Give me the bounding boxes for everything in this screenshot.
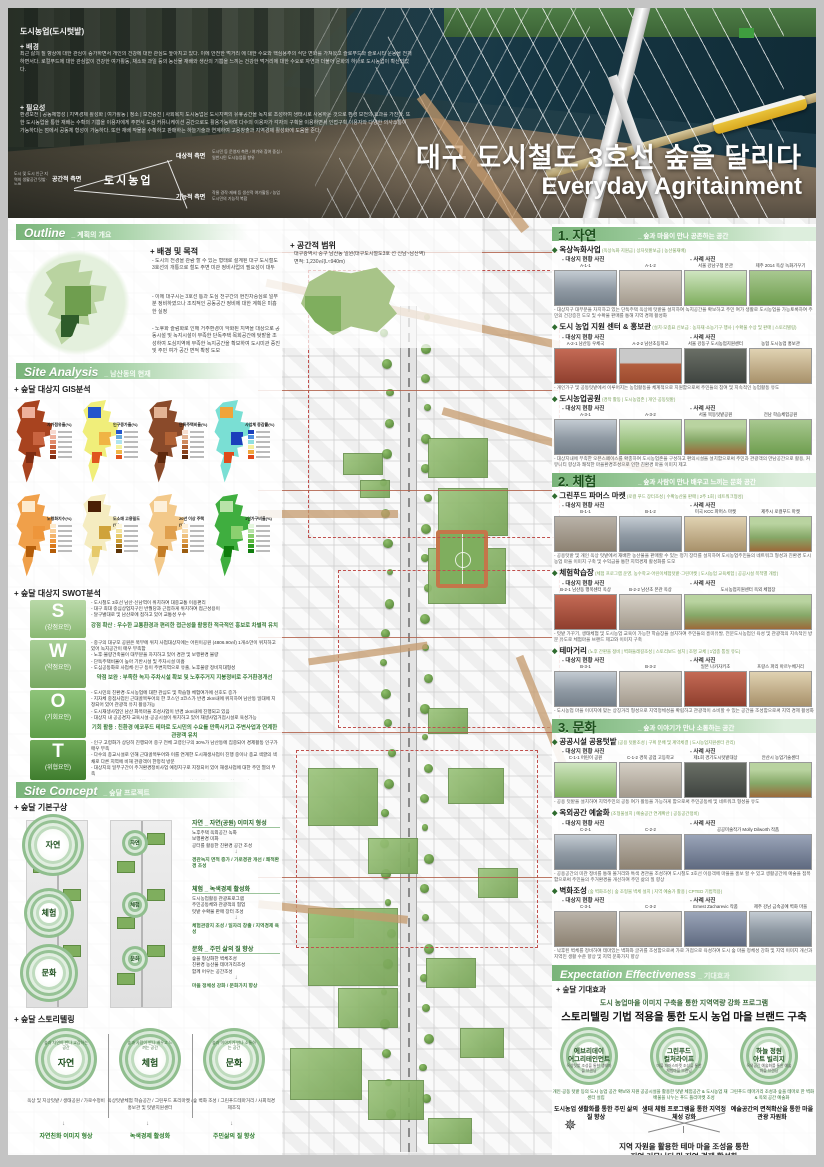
strip-green	[117, 917, 135, 929]
gis-map-label: 사업체 증감률(%)	[245, 422, 275, 428]
program-item: ◆ 체험학습장 (체험 프로그램 운영, 농수학교·어린이체험텃밭·그린마켓 |…	[552, 568, 816, 642]
photo-caption: C-3-2	[619, 904, 682, 911]
gis-legend	[50, 430, 72, 460]
photo-image	[684, 516, 747, 552]
gis-map: 20년 이상 주택(%)	[144, 490, 210, 584]
swot-letter: W	[30, 642, 86, 661]
photo-image	[684, 834, 812, 870]
photo-image	[554, 671, 617, 707]
program-item: ◆ 그린푸드 파머스 마켓 (로컬 푸드 장터조성 | 수확농산물 판매 | 2…	[552, 491, 816, 565]
legend-row	[182, 430, 204, 434]
photo: 제주시 로컬푸드 마켓	[749, 509, 812, 552]
right-column: 1. 자연_ 숲과 마을이 만나 공존하는 공간◆ 옥상녹화사업 (옥상녹화 지…	[552, 224, 816, 1155]
section-number-name: 2. 체험	[558, 471, 596, 490]
gis-title: + 숲달 대상지 GIS분석	[14, 384, 91, 395]
gis-legend	[50, 524, 72, 554]
photo: 전남 학습체험공원	[749, 412, 812, 455]
expectation-column-result: 예술공간의 면적확산을 통한 마을 관광 자원화	[728, 1107, 816, 1122]
diagram-func-note: 작물 경작·재배 등 생산적 여가활동 / 농업 도시민의 기능적 복합	[212, 190, 282, 204]
gis-legend	[248, 524, 270, 554]
swot-type: (위협요인)	[30, 762, 86, 771]
program-item-tags: (옥상녹화 지원금 | 상자텃밭보급 | 농산물재배)	[601, 248, 686, 253]
legend-chip	[116, 529, 122, 533]
swot-bullet: - 도심공동화로 사업체·인구 등이 주변지역으로 유출, 노후불량 정비지대형…	[91, 665, 278, 671]
legend-row	[50, 440, 72, 444]
concept-spiral-label: 자연	[125, 839, 145, 846]
legend-chip	[248, 435, 254, 439]
swot-bullet: - 달구벌대로 및 남산로에 접하고 있어 교통성 우수	[91, 612, 278, 618]
legend-text	[190, 446, 204, 448]
photo: A-1-1	[554, 263, 617, 306]
photo: C-2-1	[554, 827, 617, 870]
strip-green	[147, 833, 165, 845]
legend-row	[50, 539, 72, 543]
gis-map-patch	[99, 526, 111, 539]
expectation-circle-1: 에브리데이어그리테인먼트옥상텃밭 조성을 통한 생태마을 브랜딩	[560, 1027, 618, 1085]
street-tree	[422, 734, 428, 740]
swot-bullet: - 다수의 종교시설로 인해 근대골목투어와 이를 연계한 도시재생사업이 진행…	[91, 752, 278, 764]
expectation-header-sub: _ 기대효과	[696, 973, 730, 980]
photo: B-2-1 남산동 행복센터 옥상	[554, 587, 617, 630]
photo: C-2-2	[619, 827, 682, 870]
legend-row	[182, 450, 204, 454]
photo-image	[554, 419, 617, 455]
program-item-tags: (설치·모종묘 신보급 : 농자재·소농기구·행사 | 수확물 수상 및 판매 …	[651, 325, 796, 330]
goal-title: + 배경 및 목적	[150, 246, 198, 257]
gis-map-label: 단독주택비율(%)	[179, 422, 209, 428]
legend-row	[182, 549, 204, 553]
photo: A-2-1 남산동 우체국	[554, 341, 617, 384]
expectation-circle-name2: 어그리테인먼트	[563, 1056, 615, 1064]
green-parcel	[290, 1048, 362, 1100]
program-item-name: 도시 농업 지원 센터 & 홍보관	[559, 322, 651, 331]
photo: C-3-2	[619, 904, 682, 947]
legend-chip	[182, 445, 188, 449]
photo-image	[619, 834, 682, 870]
legend-row	[116, 450, 138, 454]
swot-row-s: S(강점요인)- 도시철도 3호선 남산·신남역이 위치하여 대중교통 이용편리…	[30, 600, 278, 638]
legend-row	[50, 524, 72, 528]
analysis-header-title: Site Analysis	[16, 364, 98, 380]
photo-caption: C-3-1	[554, 904, 617, 911]
goal-bullet-1: - 도시의 전경을 관람 할 수 있는 형태로 설계된 대구 도시철도 3호선의…	[152, 258, 280, 290]
daegu-map-site	[61, 315, 78, 338]
photo-image	[554, 594, 617, 630]
outline-header-sub: _ 계획의 개요	[71, 232, 111, 239]
legend-row	[182, 544, 204, 548]
story-result: 주민삶의 질 향상	[191, 1131, 277, 1140]
green-parcel	[338, 988, 398, 1028]
expectation-column-3: 그린푸드 테마거리 조성과 숲을 테마로 한 벽화 & 옥외 공간 예술화예술공…	[728, 1089, 816, 1122]
concept-spiral-label: 체험	[125, 901, 145, 908]
gis-map-patch	[231, 526, 243, 539]
green-parcel	[428, 1118, 472, 1144]
hero-photo: 도시농업(도시텃밭) + 배경 최근 삶의 질 향상에 대한 관심이 증가하면서…	[8, 8, 816, 218]
photo-image	[749, 516, 812, 552]
photo-labels-row: - 대상지 현황 사진- 사례 사진	[552, 656, 816, 664]
section-subtitle: _ 숲과 마을이 만나 공존하는 공간	[638, 230, 728, 240]
legend-chip	[50, 450, 56, 454]
street-tree	[422, 1004, 430, 1012]
photo-labels-row: - 대상지 현황 사진- 사례 사진	[552, 579, 816, 587]
program-item-tags: (숲 벽화조성 | 숲 조형물 벽체 설치 | 지역 예술가 활용 | CPTE…	[587, 889, 722, 894]
photo-caption: 미국 KCC 파머스 마켓	[684, 509, 747, 516]
legend-row	[50, 529, 72, 533]
legend-text	[124, 540, 138, 542]
photo: 서울 강남구청 본관	[684, 263, 747, 306]
legend-chip	[116, 524, 122, 528]
expectation-circle-2: 그린푸드컬처라이프마을 파머스마켓 조성을 통한 체험마을 브랜딩	[650, 1027, 708, 1085]
legend-chip	[182, 534, 188, 538]
legend-text	[124, 441, 138, 443]
street-tree	[382, 1049, 391, 1058]
photo: 서울 목동텃밭공원	[684, 412, 747, 455]
diagram-space-note: 도시 및 도시 인근 지역의 생활공간 텃밭·농원	[14, 171, 50, 185]
goal-bullet-2: - 이에 대구시는 3호선 통과 도심 천구간의 현진차중심로 일부분 정비하였…	[152, 294, 280, 324]
swot-body: - 도시민의 친환경·도시농업에 대한 관심도 및 학습형 체험여가에 선호도 …	[86, 690, 278, 738]
photo-image	[684, 911, 747, 947]
expectation-column-note: 개인·공동 텃밭 등의 도시 농업 공간 확보와 지원센터 설립	[552, 1089, 640, 1106]
gis-legend	[182, 430, 204, 460]
photo-image	[684, 419, 747, 455]
photo-image	[619, 516, 682, 552]
photo-caption: B-1-2	[619, 509, 682, 516]
photo: 공공미술작가 Molly Dilworth 작품	[684, 827, 812, 870]
down-arrow-icon: ↓	[192, 915, 280, 922]
poster-page: 도시농업(도시텃밭) + 배경 최근 삶의 질 향상에 대한 관심이 증가하면서…	[0, 0, 824, 1167]
gis-map-patch	[224, 452, 234, 463]
photo-caption: C-2-2	[619, 827, 682, 834]
photo-caption: C-1-1 어린이 공원	[554, 755, 617, 762]
expectation-circle-note: 마을 파머스마켓 조성을 통한 체험마을 브랜딩	[656, 1064, 702, 1073]
down-arrow-icon: ↓	[192, 975, 280, 982]
legend-text	[190, 431, 204, 433]
expectation-circle-name1: 그린푸드	[653, 1048, 705, 1056]
case-photos-label: - 사례 사진	[690, 333, 716, 341]
photo-image	[749, 348, 812, 384]
legend-row	[248, 435, 270, 439]
swot-letter: O	[30, 692, 86, 711]
story-tagline: 숲과 자연이 만나 교감하는 공간	[42, 1040, 89, 1050]
story-items: 옥상 및 지상텃밭 / 생태공원 / 가로수정비	[23, 1098, 109, 1120]
legend-row	[248, 534, 270, 538]
legend-row	[182, 529, 204, 533]
concept-header-title: Site Concept	[16, 783, 97, 799]
legend-text	[58, 525, 72, 527]
legend-chip	[116, 539, 122, 543]
legend-row	[116, 549, 138, 553]
section-header-체험: 2. 체험_ 숲과 사람이 만나 배우고 느끼는 문화 공간	[552, 471, 816, 488]
diagram-space-label: 공간적 측면	[52, 174, 81, 183]
gis-legend	[182, 524, 204, 554]
photo-image	[554, 348, 617, 384]
legend-chip	[116, 440, 122, 444]
legend-row	[248, 544, 270, 548]
legend-chip	[182, 430, 188, 434]
program-item: ◆ 도시 농업 지원 센터 & 홍보관 (설치·모종묘 신보급 : 농자재·소농…	[552, 322, 816, 390]
gis-map: 1인가구비율(%)	[210, 490, 276, 584]
concept-block-result: 경관녹지 면적 증가 / 가로경관 개선 / 쾌적환경 조성	[192, 858, 280, 871]
diagram-center-label: 도시농업	[104, 172, 152, 188]
swot-letter: S	[30, 602, 86, 621]
photo-caption: 안산시 농업기술센터	[749, 755, 812, 762]
legend-chip	[248, 544, 254, 548]
story-circle-2: 숲과 사람이 만나 배우고 느끼는 공간체험	[119, 1028, 181, 1090]
legend-chip	[248, 430, 254, 434]
daegu-map-blob	[38, 260, 116, 348]
legend-row	[116, 529, 138, 533]
program-item: ◆ 옥외공간 예술화 (조형물설치 | 예술공간 연계확산 | 공동공간정비)-…	[552, 808, 816, 882]
photo-caption: B-2-1 남산동 행복센터 옥상	[554, 587, 617, 594]
gis-map-patch	[224, 546, 234, 557]
photo: C-3-1	[554, 904, 617, 947]
legend-text	[124, 530, 138, 532]
expectation-circle-3: 하늘 정원아트 빌리지옥외공간 예술화를 통한 예술마을 브랜딩	[740, 1027, 798, 1085]
gis-map: 도소매 고용밀도(%)	[78, 490, 144, 584]
swot-letter-box: T(위협요인)	[30, 740, 86, 780]
expectation-circle-note: 옥상텃밭 조성을 통한 생태마을 브랜딩	[566, 1064, 612, 1073]
photo-image	[554, 834, 617, 870]
gis-map-label: 1인가구비율(%)	[245, 516, 275, 522]
photo: 도시농업지원센터 옥외 체험장	[684, 587, 812, 630]
photo: 서울 강동구 도시농업지원센터	[684, 341, 747, 384]
program-item-description: - 개인가구 및 공동텃밭에서 이루어지는 농업활동을 체계적으로 지원함으로써…	[552, 385, 816, 391]
photo: A-3-2	[619, 412, 682, 455]
legend-text	[124, 550, 138, 552]
photo-labels-row: - 대상지 현황 사진- 사례 사진	[552, 255, 816, 263]
legend-chip	[116, 549, 122, 553]
case-photos-label: - 사례 사진	[690, 896, 716, 904]
photo-image	[554, 911, 617, 947]
daegu-district-map	[10, 246, 144, 364]
swot-summary: 고령인구 및 비경제활동인구의 일자리를 창출 할 수 있는 사회적경제조직 육…	[91, 779, 278, 780]
legend-chip	[248, 524, 254, 528]
poster-title-en: Everyday Agritainment	[416, 173, 802, 201]
expectation-circle-name: 에브리데이어그리테인먼트	[563, 1048, 615, 1064]
legend-row	[50, 435, 72, 439]
legend-chip	[248, 549, 254, 553]
photo: Ernest Zacharevic 작품	[684, 904, 747, 947]
story-tagline: 숲과 이야기가 만나 소통하는 공간	[210, 1040, 257, 1050]
gis-map-patch	[220, 501, 233, 513]
expectation-circle-name2: 아트 빌리지	[743, 1056, 795, 1064]
current-photos-label: - 대상지 현황 사진	[562, 896, 605, 904]
concept-spiral-label: 자연	[25, 839, 81, 850]
photo-image	[684, 594, 812, 630]
legend-row	[50, 455, 72, 459]
down-arrow-icon: ↓	[192, 849, 280, 856]
current-photos-label: - 대상지 현황 사진	[562, 501, 605, 509]
photo-image	[554, 516, 617, 552]
legend-chip	[182, 529, 188, 533]
photo: A-2-2 남산초등학교	[619, 341, 682, 384]
concept-block: 체험 _ 녹색경제 활성화도시농업활용 관광프로그램주민공동체와 관광객의 협업…	[192, 884, 280, 937]
case-photos-label: - 사례 사진	[690, 501, 716, 509]
swot-title: + 숲달 대상지 SWOT분석	[14, 588, 101, 599]
street-tree	[419, 1064, 426, 1071]
program-item-title: ◆ 도시농업공원 (경작 활동 | 도시농업존 | 개인·공동텃밭)	[552, 394, 816, 404]
legend-row	[248, 455, 270, 459]
photo-row: C-3-1C-3-2Ernest Zacharevic 작품제주 강남 금속공예…	[552, 904, 816, 947]
legend-text	[58, 540, 72, 542]
program-item-name: 그린푸드 파머스 마켓	[559, 491, 625, 500]
swot-letter: T	[30, 742, 86, 761]
photo-labels-row: - 대상지 현황 사진- 사례 사진	[552, 747, 816, 755]
legend-text	[58, 535, 72, 537]
legend-row	[248, 450, 270, 454]
gis-map-patch	[33, 526, 45, 539]
green-mark	[739, 28, 754, 38]
gis-map-patch	[154, 501, 167, 513]
legend-chip	[50, 539, 56, 543]
photo-caption: C-2-1	[554, 827, 617, 834]
analysis-header-sub: _ 남산동의 현재	[104, 371, 150, 378]
legend-chip	[116, 445, 122, 449]
leader-line	[258, 637, 558, 638]
photo-caption: 제주 2014 옥상 녹화가꾸기	[749, 263, 812, 270]
legend-text	[190, 550, 204, 552]
gis-map: 인구증가율(%)	[78, 396, 144, 490]
legend-chip	[248, 455, 254, 459]
gis-map-patch	[33, 432, 45, 445]
story-name: 문화	[206, 1057, 262, 1070]
program-item: ◆ 테마거리 (노후 간판을 정비 | 벽화둘레길조성 | 스토리보드 설치 |…	[552, 646, 816, 714]
legend-text	[190, 456, 204, 458]
gis-legend	[248, 430, 270, 460]
program-item-name: 도시농업공원	[559, 394, 600, 403]
photo-image	[554, 762, 617, 798]
expectation-circle-name1: 에브리데이	[563, 1048, 615, 1056]
photo: 제주 2014 옥상 녹화가꾸기	[749, 263, 812, 306]
expectation-circle-note: 옥외공간 예술화를 통한 예술마을 브랜딩	[746, 1064, 792, 1073]
program-item-description: - 공용 텃밭을 설치하여 지역주민의 공동 여가 활동을 가능하게 함으로써 …	[552, 799, 816, 805]
photo-caption: A-1-1	[554, 263, 617, 270]
legend-text	[58, 456, 72, 458]
legend-chip	[182, 524, 188, 528]
photo-caption: 전남 학습체험공원	[749, 412, 812, 419]
gis-map-patch	[26, 452, 36, 463]
expectation-circle-name: 그린푸드컬처라이프	[653, 1048, 705, 1064]
story-tagline: 숲과 사람이 만나 배우고 느끼는 공간	[126, 1040, 173, 1050]
program-item: ◆ 공공시설 공용텃밭 (공용 텃밭조성 | 구획 분배 및 계약체결 | 도시…	[552, 737, 816, 805]
story-name: 체험	[122, 1057, 178, 1070]
legend-text	[58, 436, 72, 438]
legend-chip	[248, 534, 254, 538]
legend-chip	[116, 435, 122, 439]
legend-text	[190, 451, 204, 453]
expectation-line1: 도시 농업마을 이미지 구축을 통한 지역역량 강화 프로그램	[552, 998, 816, 1008]
case-photos-label: - 사례 사진	[690, 404, 716, 412]
outline-section-header: Outline_ 계획의 개요	[16, 224, 248, 240]
legend-chip	[50, 455, 56, 459]
current-photos-label: - 대상지 현황 사진	[562, 404, 605, 412]
legend-text	[124, 545, 138, 547]
photo-caption: A-1-2	[619, 263, 682, 270]
photo: C-1-1 어린이 공원	[554, 755, 617, 798]
section-number-name: 3. 문화	[558, 717, 596, 736]
expectation-title: + 숲달 기대효과	[552, 984, 816, 995]
analysis-section-header: Site Analysis_ 남산동의 현재	[16, 363, 248, 379]
concept-spiral-문화: 문화	[20, 944, 78, 1002]
legend-chip	[248, 440, 254, 444]
section-header-문화: 3. 문화_ 숲과 이야기가 만나 소통하는 공간	[552, 717, 816, 734]
story-circle-1: 숲과 자연이 만나 교감하는 공간자연	[35, 1028, 97, 1090]
expectation-circle-name: 하늘 정원아트 빌리지	[743, 1048, 795, 1064]
photo-image	[619, 762, 682, 798]
legend-chip	[50, 435, 56, 439]
photo-labels-row: - 대상지 현황 사진- 사례 사진	[552, 819, 816, 827]
legend-text	[124, 456, 138, 458]
legend-row	[182, 445, 204, 449]
photo-labels-row: - 대상지 현황 사진- 사례 사진	[552, 896, 816, 904]
legend-row	[116, 455, 138, 459]
down-arrow-icon: ↓	[230, 1121, 233, 1128]
legend-text	[58, 545, 72, 547]
concept-basic-title: + 숲달 기본구상	[14, 802, 67, 813]
gis-map: 자가점유율(%)	[12, 396, 78, 490]
story-circle-3: 숲과 이야기가 만나 소통하는 공간문화	[203, 1028, 265, 1090]
photo-row: B-2-1 남산동 행복센터 옥상B-2-2 남산초 본관 옥상도시농업지원센터…	[552, 587, 816, 630]
legend-text	[256, 441, 270, 443]
photo-caption: C-1-2 경북 공업 고등학교	[619, 755, 682, 762]
street-tree	[383, 539, 392, 548]
diagram-target-note: 도시민 등 운영자 측면 / 여가와 참여 중심 / 일반시민 도시농업을 향유	[212, 149, 282, 163]
outline-header-title: Outline	[16, 225, 65, 241]
concept-block-title: 문화 _ 주민 삶의 질 향상	[192, 944, 280, 954]
green-parcel	[368, 1080, 424, 1120]
swot-letter-box: W(약점요인)	[30, 640, 86, 688]
legend-row	[116, 435, 138, 439]
photo-caption: 일본 나카자키초	[684, 664, 747, 671]
legend-text	[124, 451, 138, 453]
program-item-name: 옥상녹화사업	[559, 245, 600, 254]
program-item-tags: (로컬 푸드 장터조성 | 수확농산물 판매 | 2주 1회 | 네트워크형성)	[626, 494, 744, 499]
swot-body: - 중구의 대규모 공원은 북부에 위치 사업대상지에는 어린이공원 (4806…	[86, 640, 278, 688]
gis-map-patch	[165, 526, 177, 539]
concept-block: 문화 _ 주민 삶의 질 향상숲을 형상화한 벽체조성친환경 농산물 테마거리조…	[192, 944, 280, 990]
diagram-target-label: 대상적 측면	[176, 151, 205, 160]
street-tree	[424, 1034, 434, 1044]
program-item-name: 테마거리	[559, 646, 587, 655]
concept-spiral-체험: 체험	[24, 888, 74, 938]
photo-row: B-3-1B-3-2일본 나카자키초프랑스 파리 아르누베거리	[552, 664, 816, 707]
program-item-description: - 도시농업 마을 이미지에 맞는 상징거리 형성으로 지역정체성을 확립하고 …	[552, 708, 816, 714]
photo-image	[619, 419, 682, 455]
gis-map-patch	[99, 432, 111, 445]
legend-row	[116, 534, 138, 538]
photo-image	[749, 762, 812, 798]
legend-row	[50, 544, 72, 548]
concept-block-result: 마을 정체성 강화 / 문화가치 향상	[192, 984, 280, 990]
concept-spiral-label: 문화	[125, 955, 145, 962]
down-arrow-icon: ↓	[146, 1121, 149, 1128]
leader-line	[258, 732, 558, 733]
gis-map-label: 노령화지수(%)	[47, 516, 77, 522]
green-parcel	[426, 958, 476, 988]
gis-map-patch	[92, 546, 102, 557]
photo: A-3-1	[554, 412, 617, 455]
legend-text	[124, 431, 138, 433]
program-item-tags: (경작 활동 | 도시농업존 | 개인·공동텃밭)	[601, 397, 676, 402]
legend-row	[248, 539, 270, 543]
program-item-description: - 대상지내에 부족한 오픈스페이스를 확충하여 도시농업존을 구성하고 편의시…	[552, 456, 816, 468]
photo-labels-row: - 대상지 현황 사진- 사례 사진	[552, 404, 816, 412]
legend-text	[124, 525, 138, 527]
photo-image	[554, 270, 617, 306]
case-photos-label: - 사례 사진	[690, 255, 716, 263]
expectation-columns: 개인·공동 텃밭 등의 도시 농업 공간 확보와 지원센터 설립도시농업 생활화…	[552, 1089, 816, 1122]
program-item-title: ◆ 체험학습장 (체험 프로그램 운영, 농수학교·어린이체험텃밭·그린마켓 |…	[552, 568, 816, 578]
